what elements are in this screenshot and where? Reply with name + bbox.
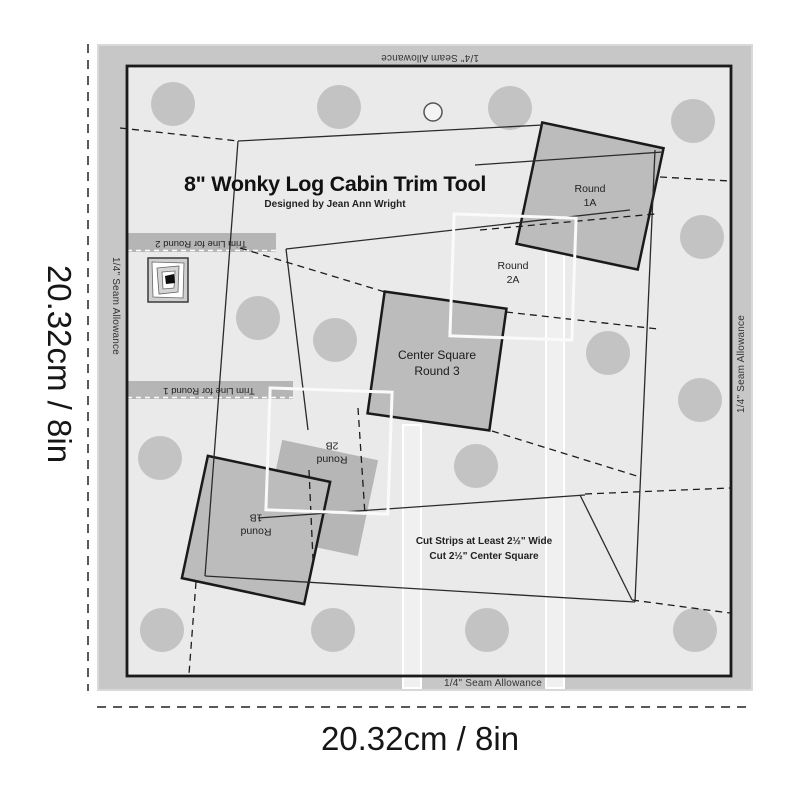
trim-line-round1-label: Trim Line for Round 1 (134, 383, 284, 396)
trim-line-round2-label: Trim Line for Round 2 (126, 236, 276, 249)
round-1b-label: Round 1B (216, 510, 296, 537)
designer-credit: Designed by Jean Ann Wright (170, 199, 500, 212)
center-square-label: Center Square Round 3 (357, 347, 517, 379)
cutting-instructions: Cut Strips at Least 2½" Wide Cut 2½" Cen… (384, 534, 584, 564)
seam-allowance-bottom-label: 1/4" Seam Allowance (413, 678, 573, 692)
seam-allowance-left-label: 1/4" Seam Allowance (107, 256, 121, 356)
dimension-bottom-label: 20.32cm / 8in (270, 718, 570, 759)
seam-allowance-top-label: 1/4" Seam Allowance (350, 49, 510, 63)
round-2a-label: Round 2A (473, 260, 553, 287)
round-1a-label: Round 1A (550, 183, 630, 210)
ruler-graphics (0, 0, 800, 800)
seam-allowance-right-label: 1/4" Seam Allowance (736, 314, 750, 414)
round-2b-label: Round 2B (292, 438, 372, 465)
product-title: 8" Wonky Log Cabin Trim Tool (170, 171, 500, 198)
product-image: 8" Wonky Log Cabin Trim Tool Designed by… (0, 0, 800, 800)
hang-hole-icon (424, 103, 442, 121)
log-cabin-block-icon (148, 258, 188, 302)
dimension-left-label: 20.32cm / 8in (40, 244, 80, 484)
